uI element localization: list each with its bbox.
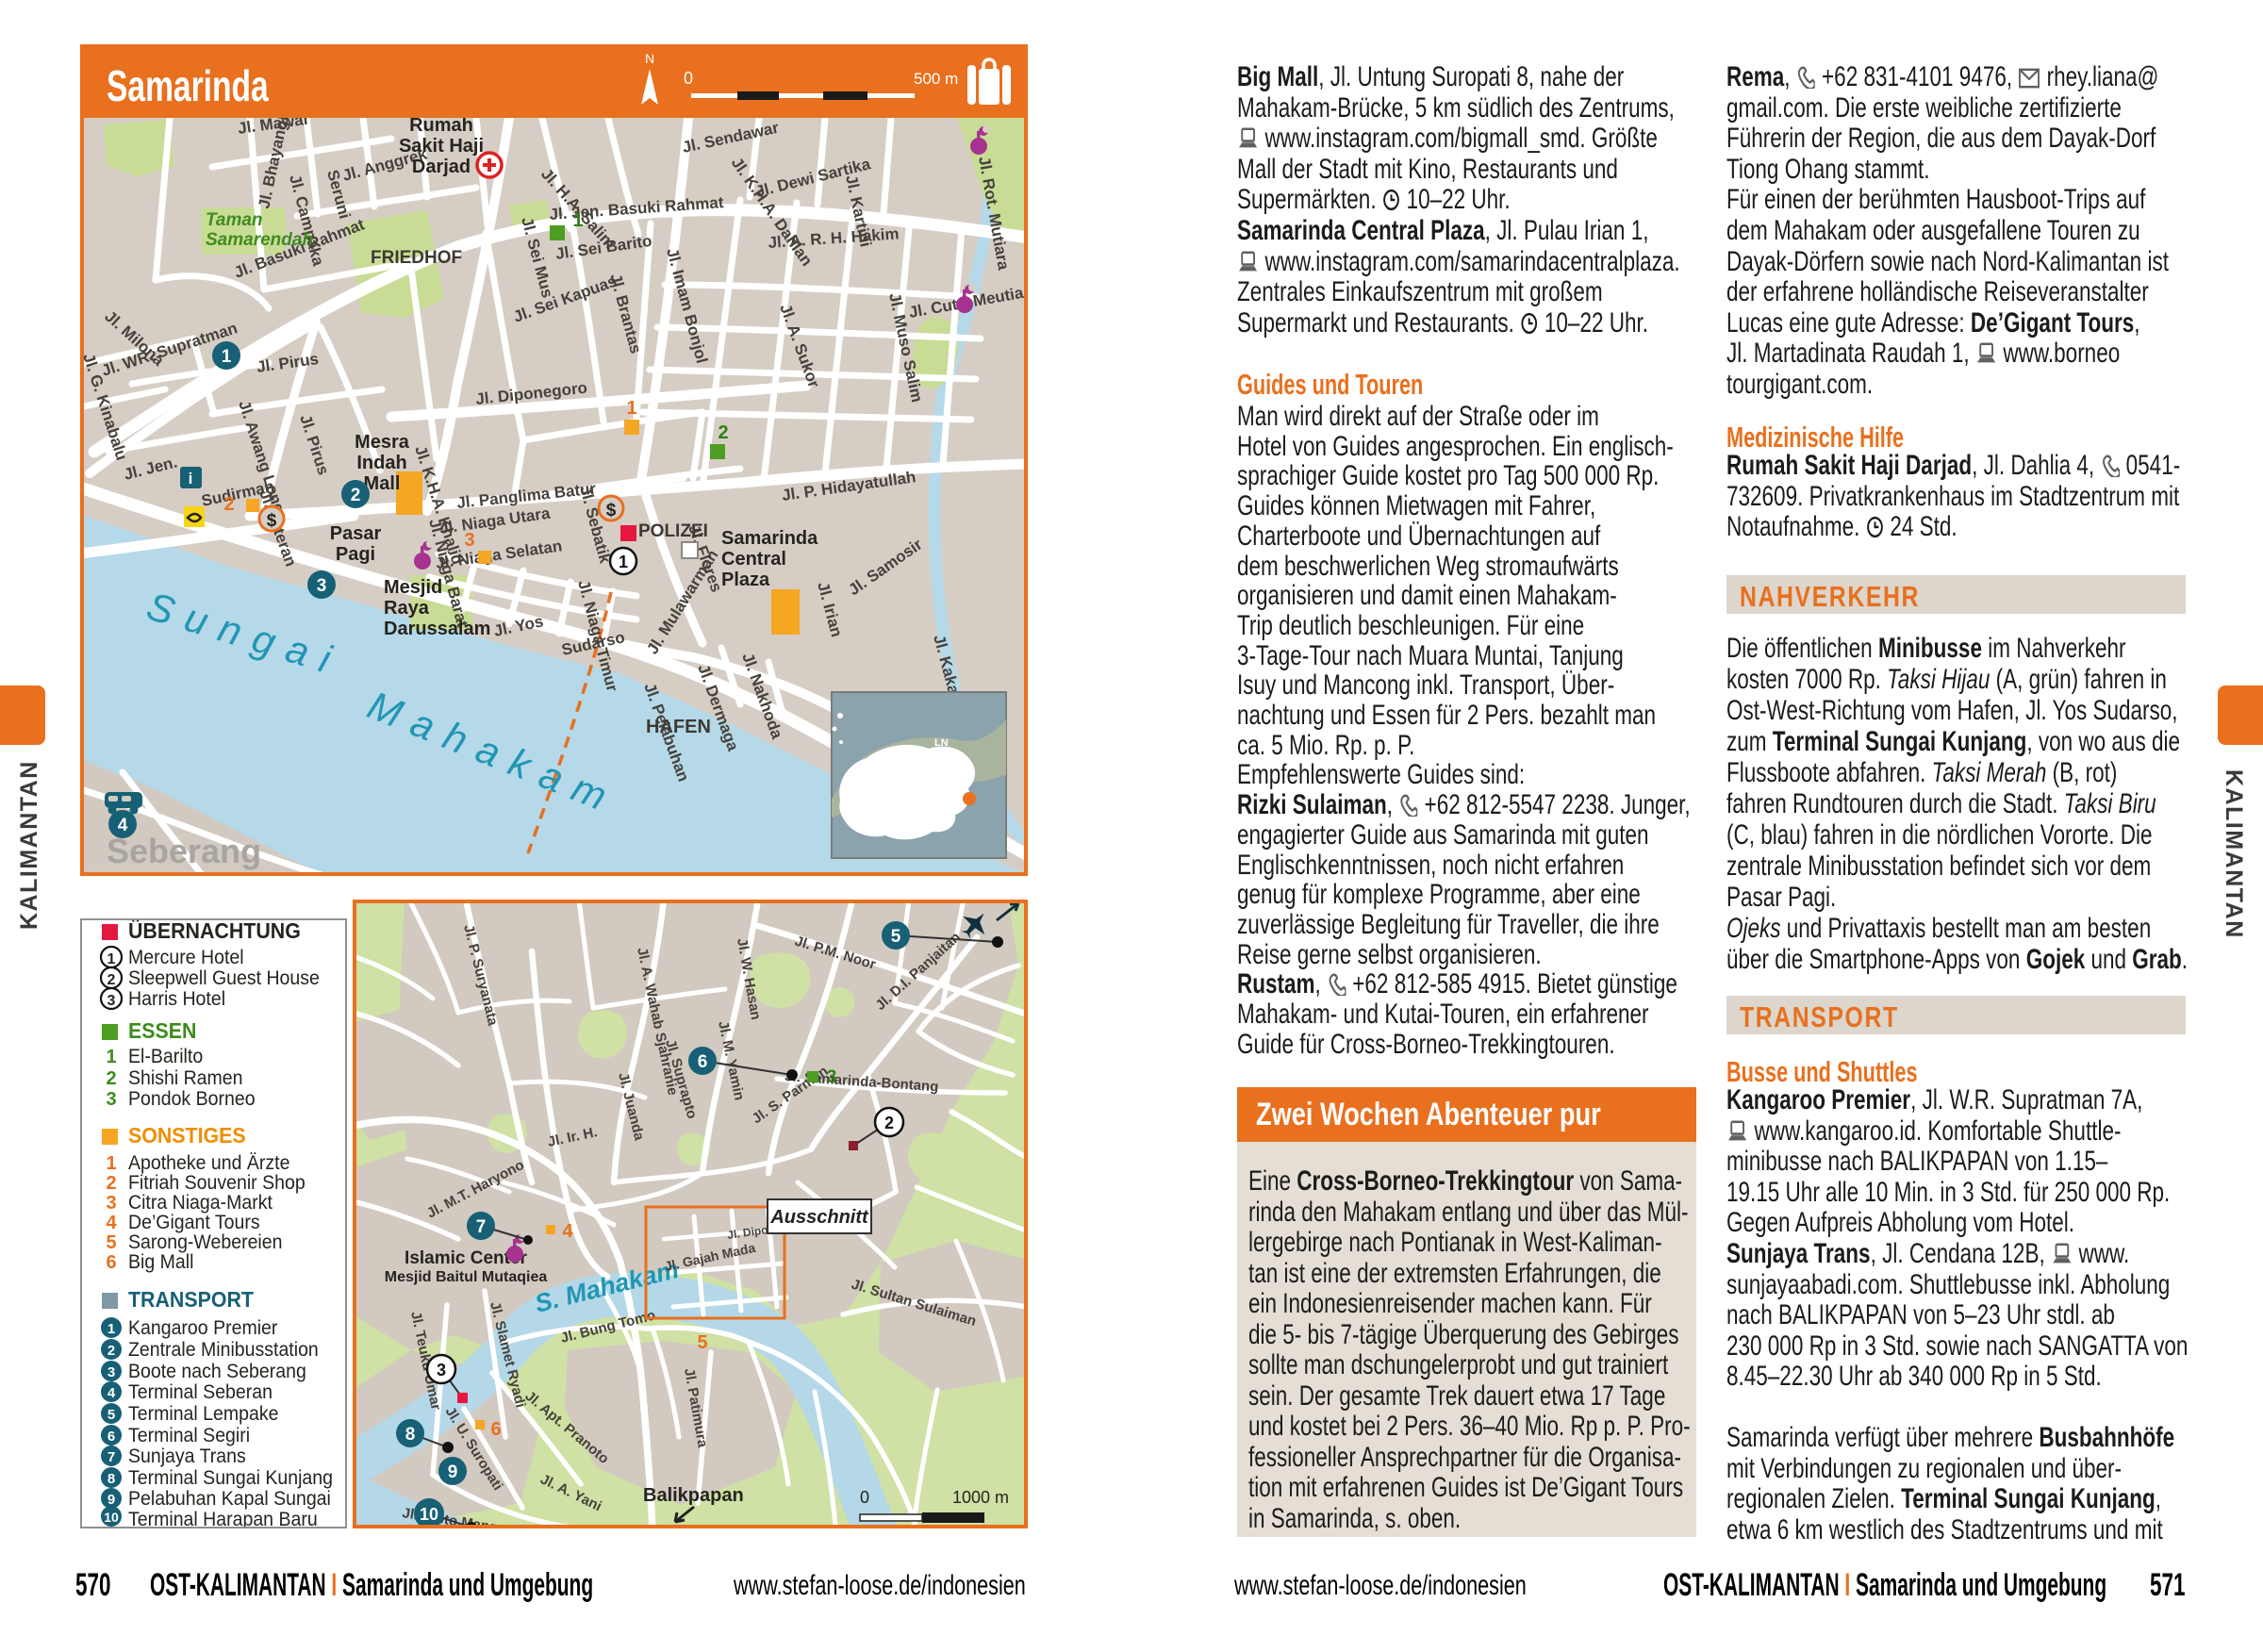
svg-text:4: 4 xyxy=(562,1221,573,1242)
svg-text:3: 3 xyxy=(317,576,327,596)
svg-text:1: 1 xyxy=(626,398,636,419)
svg-text:2: 2 xyxy=(106,1068,116,1089)
svg-text:6: 6 xyxy=(106,1252,116,1273)
svg-text:i: i xyxy=(189,470,193,487)
svg-text:Samarinda: Samarinda xyxy=(721,528,818,549)
svg-text:2: 2 xyxy=(106,1173,116,1194)
svg-text:2: 2 xyxy=(718,422,728,443)
svg-text:Mesra: Mesra xyxy=(355,432,410,453)
svg-text:6: 6 xyxy=(490,1419,501,1440)
svg-text:Central: Central xyxy=(721,549,786,570)
svg-text:Rumah: Rumah xyxy=(409,115,473,136)
svg-text:1: 1 xyxy=(106,1153,116,1174)
svg-text:Balikpapan: Balikpapan xyxy=(643,1485,744,1506)
svg-text:1: 1 xyxy=(619,553,628,571)
svg-text:Samarendah: Samarendah xyxy=(206,230,313,250)
svg-text:Pagi: Pagi xyxy=(336,544,375,565)
svg-text:Samarinda: Samarinda xyxy=(107,62,269,110)
svg-text:6: 6 xyxy=(698,1052,708,1072)
svg-text:9: 9 xyxy=(448,1462,458,1482)
svg-text:Big Mall: Big Mall xyxy=(128,1251,193,1273)
svg-text:Mercure Hotel: Mercure Hotel xyxy=(128,947,244,968)
svg-text:8: 8 xyxy=(107,1471,115,1487)
svg-text:8: 8 xyxy=(405,1425,416,1445)
svg-text:4: 4 xyxy=(106,1213,117,1233)
svg-text:2: 2 xyxy=(107,972,116,988)
svg-text:FRIEDHOF: FRIEDHOF xyxy=(371,248,462,268)
svg-text:N: N xyxy=(645,51,654,66)
svg-text:3: 3 xyxy=(106,1089,116,1110)
svg-text:Plaza: Plaza xyxy=(721,570,770,590)
svg-text:Shishi Ramen: Shishi Ramen xyxy=(128,1067,243,1089)
svg-text:3: 3 xyxy=(107,993,116,1009)
svg-text:5: 5 xyxy=(891,927,901,947)
svg-text:1: 1 xyxy=(107,1321,115,1337)
svg-text:Seberang: Seberang xyxy=(107,832,261,870)
svg-text:Harris Hotel: Harris Hotel xyxy=(128,988,225,1010)
svg-text:Apotheke und Ärzte: Apotheke und Ärzte xyxy=(128,1152,289,1174)
svg-text:3: 3 xyxy=(437,1361,446,1379)
svg-text:2: 2 xyxy=(351,486,361,505)
svg-text:3: 3 xyxy=(827,1067,837,1087)
svg-text:1000 m: 1000 m xyxy=(952,1488,1009,1507)
svg-text:Fitriah Souvenir Shop: Fitriah Souvenir Shop xyxy=(128,1172,306,1194)
svg-text:2: 2 xyxy=(107,1343,115,1359)
svg-text:Darussalam: Darussalam xyxy=(384,619,490,639)
svg-text:ESSEN: ESSEN xyxy=(128,1018,196,1043)
svg-text:Pondok Borneo: Pondok Borneo xyxy=(128,1088,256,1110)
svg-text:4: 4 xyxy=(118,816,128,835)
svg-text:$: $ xyxy=(606,501,617,520)
svg-text:Citra Niaga-Markt: Citra Niaga-Markt xyxy=(128,1192,273,1214)
svg-text:De’Gigant Tours: De’Gigant Tours xyxy=(128,1212,260,1233)
svg-text:Darjad: Darjad xyxy=(412,157,471,177)
svg-text:5: 5 xyxy=(697,1332,707,1353)
svg-text:0: 0 xyxy=(684,69,693,88)
svg-text:1: 1 xyxy=(222,347,232,367)
svg-text:Zentrale Minibusstation: Zentrale Minibusstation xyxy=(128,1339,319,1361)
svg-text:El-Barilto: El-Barilto xyxy=(128,1046,203,1067)
svg-text:Ausschnitt: Ausschnitt xyxy=(769,1207,869,1228)
svg-text:4: 4 xyxy=(107,1385,116,1401)
svg-text:1: 1 xyxy=(107,951,116,967)
svg-text:9: 9 xyxy=(107,1492,115,1508)
svg-text:Sakit Haji: Sakit Haji xyxy=(399,136,484,157)
svg-text:Mesjid Baitul Mutaqiea: Mesjid Baitul Mutaqiea xyxy=(385,1269,548,1285)
svg-text:7: 7 xyxy=(107,1449,115,1465)
svg-text:3: 3 xyxy=(106,1193,116,1214)
svg-text:Pelabuhan Kapal Sungai: Pelabuhan Kapal Sungai xyxy=(128,1488,331,1510)
svg-text:6: 6 xyxy=(107,1429,115,1445)
svg-text:1: 1 xyxy=(572,210,583,231)
svg-text:$: $ xyxy=(267,511,277,531)
svg-text:Kangaroo Premier: Kangaroo Premier xyxy=(128,1317,278,1339)
svg-text:2: 2 xyxy=(884,1114,894,1132)
svg-text:3: 3 xyxy=(464,530,474,551)
svg-text:SONSTIGES: SONSTIGES xyxy=(128,1123,246,1148)
svg-text:TRANSPORT: TRANSPORT xyxy=(128,1287,254,1312)
svg-text:LN: LN xyxy=(934,737,949,749)
svg-text:Sunjaya Trans: Sunjaya Trans xyxy=(128,1445,246,1467)
svg-text:Terminal Segiri: Terminal Segiri xyxy=(128,1425,250,1446)
svg-text:Indah: Indah xyxy=(356,453,406,473)
svg-text:Terminal Lempake: Terminal Lempake xyxy=(128,1403,278,1425)
svg-text:7: 7 xyxy=(476,1217,487,1237)
svg-text:Boote nach Seberang: Boote nach Seberang xyxy=(128,1361,306,1382)
svg-text:Pasar: Pasar xyxy=(330,523,382,544)
svg-text:0: 0 xyxy=(860,1488,869,1507)
svg-text:Raya: Raya xyxy=(384,598,430,619)
svg-text:Terminal Harapan Baru: Terminal Harapan Baru xyxy=(128,1509,318,1527)
svg-text:10: 10 xyxy=(420,1505,438,1524)
svg-text:1: 1 xyxy=(106,1047,116,1067)
svg-text:Sarong-Webereien: Sarong-Webereien xyxy=(128,1231,282,1253)
svg-text:5: 5 xyxy=(107,1407,115,1423)
svg-text:Mesjid: Mesjid xyxy=(384,577,442,598)
svg-text:5: 5 xyxy=(106,1232,116,1253)
svg-text:500 m: 500 m xyxy=(914,70,958,88)
svg-text:Terminal Seberan: Terminal Seberan xyxy=(128,1381,273,1403)
svg-text:POLIZEI: POLIZEI xyxy=(638,521,708,541)
svg-text:ÜBERNACHTUNG: ÜBERNACHTUNG xyxy=(128,920,301,943)
svg-text:Terminal Sungai Kunjang: Terminal Sungai Kunjang xyxy=(128,1467,333,1489)
svg-text:2: 2 xyxy=(223,494,234,515)
svg-text:3: 3 xyxy=(107,1364,115,1380)
svg-text:10: 10 xyxy=(104,1510,119,1525)
svg-text:Sleepwell Guest House: Sleepwell Guest House xyxy=(128,967,320,989)
svg-text:Taman: Taman xyxy=(206,210,263,230)
